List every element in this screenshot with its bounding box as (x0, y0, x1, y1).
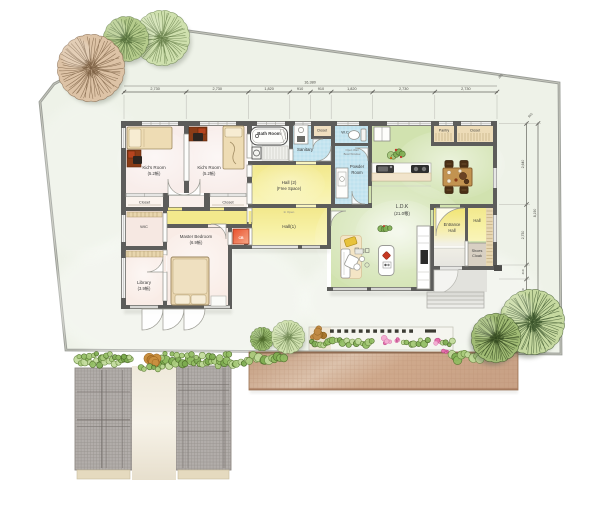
svg-text:Sanitary: Sanitary (297, 147, 314, 152)
svg-text:(Free Space): (Free Space) (277, 186, 302, 191)
svg-text:Bath Room: Bath Room (257, 131, 281, 136)
svg-text:WIC: WIC (140, 224, 148, 229)
svg-text:Hall(1): Hall(1) (282, 224, 296, 229)
svg-text:2,730: 2,730 (150, 87, 160, 91)
svg-text:2,640: 2,640 (521, 160, 525, 169)
svg-text:Kid's Room: Kid's Room (142, 165, 166, 170)
svg-text:(3.9帳): (3.9帳) (138, 285, 151, 292)
svg-text:(21.0帳): (21.0帳) (394, 210, 410, 217)
svg-text:Pantry: Pantry (439, 129, 450, 133)
svg-text:Kid's Room: Kid's Room (197, 165, 221, 170)
svg-text:1,820: 1,820 (347, 87, 357, 91)
svg-text:1,820: 1,820 (264, 87, 274, 91)
svg-text:Powder: Powder (350, 164, 365, 169)
svg-text:W.C: W.C (341, 130, 349, 135)
svg-text:910: 910 (318, 87, 324, 91)
svg-text:Master Bedroom: Master Bedroom (180, 234, 213, 239)
svg-text:Shoes: Shoes (472, 249, 483, 253)
svg-text:Closet: Closet (470, 129, 480, 133)
svg-text:Library: Library (137, 280, 152, 285)
svg-text:(6.9帳): (6.9帳) (190, 239, 203, 246)
svg-text:Cloak: Cloak (472, 254, 482, 258)
svg-text:910: 910 (297, 87, 303, 91)
svg-text:Hall (2): Hall (2) (282, 180, 297, 185)
svg-text:CB: CB (238, 236, 244, 240)
svg-text:(5.2帳): (5.2帳) (148, 170, 161, 177)
svg-text:2,730: 2,730 (521, 231, 525, 240)
svg-text:(5.2帳): (5.2帳) (203, 170, 216, 177)
svg-text:2,730: 2,730 (399, 87, 409, 91)
svg-text:410: 410 (521, 269, 525, 274)
svg-text:Room: Room (351, 170, 363, 175)
svg-text:8,190: 8,190 (533, 209, 537, 218)
svg-text:Hall: Hall (473, 218, 480, 223)
svg-text:L.D.K: L.D.K (396, 204, 409, 210)
svg-text:In Open: In Open (284, 210, 295, 214)
svg-text:Bowl Window: Bowl Window (344, 152, 362, 156)
svg-text:Closet: Closet (317, 129, 327, 133)
svg-text:Closet: Closet (139, 200, 151, 205)
svg-text:2,730: 2,730 (213, 87, 223, 91)
svg-text:Entrance: Entrance (444, 222, 461, 227)
svg-text:Hall: Hall (448, 228, 455, 233)
svg-text:2,730: 2,730 (461, 87, 471, 91)
svg-text:Closet: Closet (222, 200, 234, 205)
svg-text:16,380: 16,380 (304, 81, 316, 85)
